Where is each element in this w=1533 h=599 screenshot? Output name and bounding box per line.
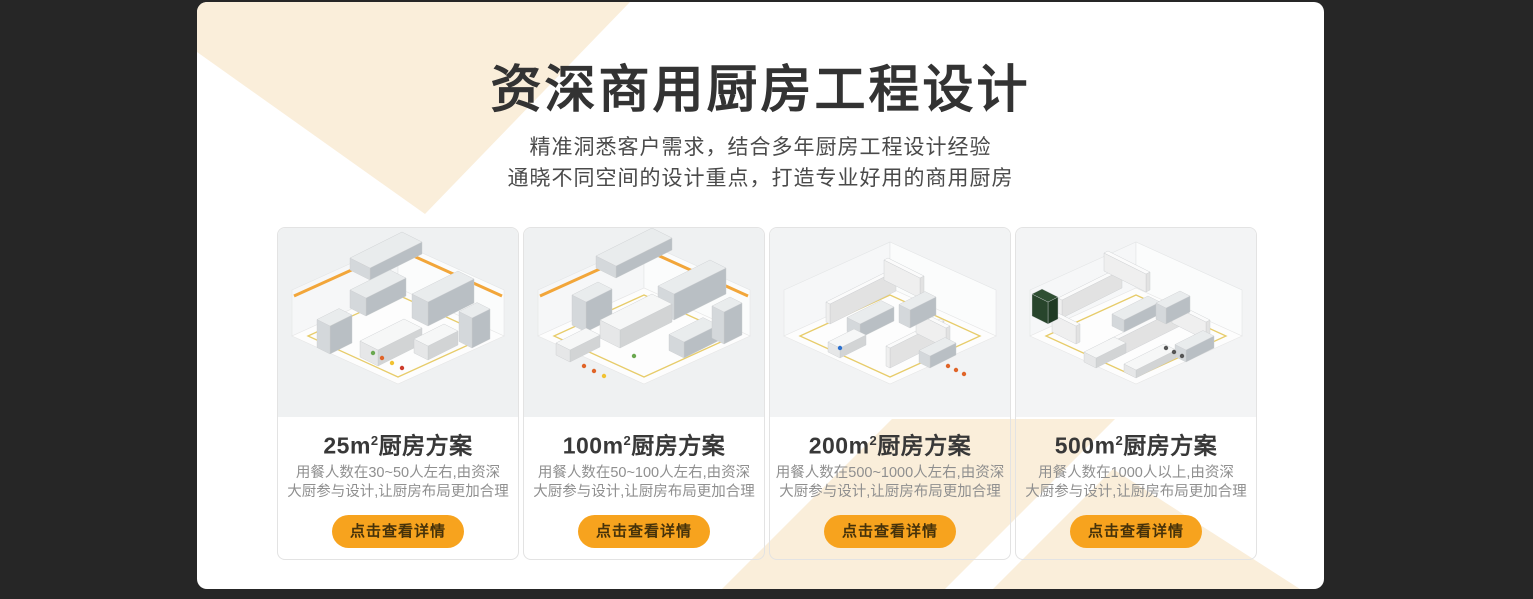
- section-header: 资深商用厨房工程设计 精准洞悉客户需求，结合多年厨房工程设计经验 通晓不同空间的…: [197, 2, 1324, 194]
- view-details-button-500m2[interactable]: 点击查看详情: [1070, 515, 1202, 548]
- card-title-text: 厨房方案: [631, 433, 725, 459]
- kitchen-plan-card-500m2: 500m2厨房方案 用餐人数在1000人以上,由资深 大厨参与设计,让厨房布局更…: [1015, 227, 1257, 560]
- view-details-button-25m2[interactable]: 点击查看详情: [332, 515, 464, 548]
- kitchen-plan-card-200m2: 200m2厨房方案 用餐人数在500~1000人左右,由资深 大厨参与设计,让厨…: [769, 227, 1011, 560]
- card-description-line-1: 用餐人数在50~100人左右,由资深: [524, 464, 764, 483]
- card-description-line-2: 大厨参与设计,让厨房布局更加合理: [278, 483, 518, 502]
- card-title-text: 厨房方案: [1123, 433, 1217, 459]
- view-details-button-200m2[interactable]: 点击查看详情: [824, 515, 956, 548]
- kitchen-render-500m2-image: [1016, 228, 1256, 417]
- page-background: { "page": { "background": "#262626", "pa…: [0, 0, 1533, 599]
- page-title: 资深商用厨房工程设计: [197, 62, 1324, 118]
- card-description-line-2: 大厨参与设计,让厨房布局更加合理: [1016, 483, 1256, 502]
- card-title: 100m2厨房方案: [524, 426, 764, 461]
- card-title: 500m2厨房方案: [1016, 426, 1256, 461]
- card-title: 25m2厨房方案: [278, 426, 518, 461]
- card-description-line-1: 用餐人数在30~50人左右,由资深: [278, 464, 518, 483]
- kitchen-plan-card-25m2: 25m2厨房方案 用餐人数在30~50人左右,由资深 大厨参与设计,让厨房布局更…: [277, 227, 519, 560]
- card-description: 用餐人数在500~1000人左右,由资深 大厨参与设计,让厨房布局更加合理: [770, 464, 1010, 502]
- card-title-number: 200m: [809, 433, 870, 459]
- card-title-text: 厨房方案: [379, 433, 473, 459]
- subtitle-line-2: 通晓不同空间的设计重点，打造专业好用的商用厨房: [197, 163, 1324, 194]
- card-description: 用餐人数在30~50人左右,由资深 大厨参与设计,让厨房布局更加合理: [278, 464, 518, 502]
- card-description-line-1: 用餐人数在1000人以上,由资深: [1016, 464, 1256, 483]
- content-panel: 资深商用厨房工程设计 精准洞悉客户需求，结合多年厨房工程设计经验 通晓不同空间的…: [197, 2, 1324, 589]
- card-title: 200m2厨房方案: [770, 426, 1010, 461]
- kitchen-render-100m2-image: [524, 228, 764, 417]
- card-title-superscript: 2: [371, 433, 379, 448]
- view-details-button-100m2[interactable]: 点击查看详情: [578, 515, 710, 548]
- card-title-text: 厨房方案: [877, 433, 971, 459]
- subtitle-line-1: 精准洞悉客户需求，结合多年厨房工程设计经验: [197, 132, 1324, 163]
- kitchen-render-25m2-image: [278, 228, 518, 417]
- kitchen-plan-card-row: 25m2厨房方案 用餐人数在30~50人左右,由资深 大厨参与设计,让厨房布局更…: [277, 227, 1257, 560]
- card-description: 用餐人数在1000人以上,由资深 大厨参与设计,让厨房布局更加合理: [1016, 464, 1256, 502]
- card-title-number: 100m: [563, 433, 624, 459]
- card-description-line-2: 大厨参与设计,让厨房布局更加合理: [770, 483, 1010, 502]
- card-description-line-1: 用餐人数在500~1000人左右,由资深: [770, 464, 1010, 483]
- page-subtitle: 精准洞悉客户需求，结合多年厨房工程设计经验 通晓不同空间的设计重点，打造专业好用…: [197, 132, 1324, 194]
- card-description: 用餐人数在50~100人左右,由资深 大厨参与设计,让厨房布局更加合理: [524, 464, 764, 502]
- card-title-number: 500m: [1055, 433, 1116, 459]
- card-description-line-2: 大厨参与设计,让厨房布局更加合理: [524, 483, 764, 502]
- card-title-number: 25m: [323, 433, 371, 459]
- kitchen-render-200m2-image: [770, 228, 1010, 417]
- kitchen-plan-card-100m2: 100m2厨房方案 用餐人数在50~100人左右,由资深 大厨参与设计,让厨房布…: [523, 227, 765, 560]
